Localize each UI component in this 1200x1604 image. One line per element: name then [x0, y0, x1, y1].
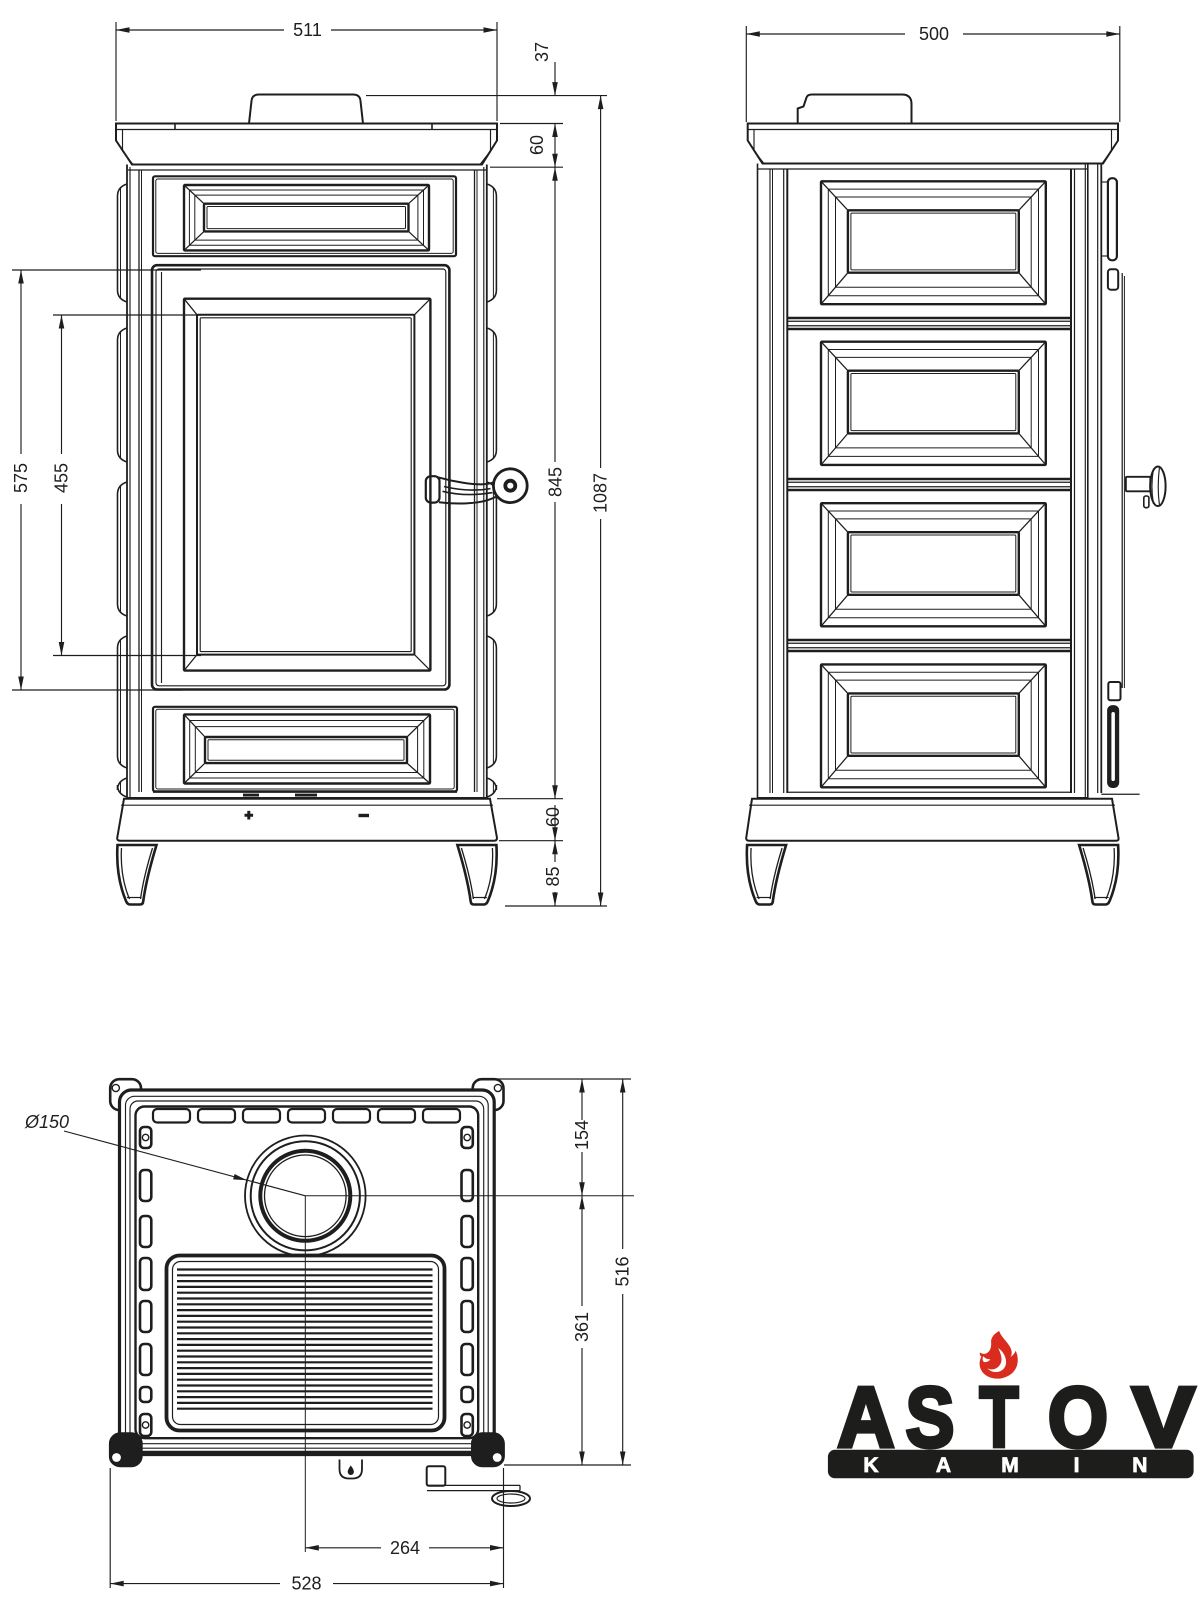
- svg-text:A: A: [936, 1454, 951, 1477]
- svg-text:60: 60: [527, 135, 547, 155]
- svg-text:I: I: [1074, 1454, 1080, 1477]
- svg-text:455: 455: [52, 463, 72, 493]
- svg-text:60: 60: [543, 807, 563, 827]
- svg-text:Ø150: Ø150: [24, 1112, 69, 1132]
- svg-text:361: 361: [572, 1312, 592, 1342]
- svg-text:516: 516: [613, 1256, 633, 1286]
- svg-text:528: 528: [291, 1574, 321, 1594]
- svg-text:845: 845: [546, 467, 566, 497]
- svg-text:154: 154: [572, 1120, 592, 1150]
- svg-text:1087: 1087: [591, 473, 611, 513]
- svg-text:85: 85: [543, 866, 563, 886]
- svg-text:37: 37: [532, 42, 552, 62]
- svg-text:K: K: [863, 1454, 878, 1477]
- svg-text:500: 500: [919, 24, 949, 44]
- svg-text:264: 264: [390, 1538, 420, 1558]
- svg-text:M: M: [1001, 1454, 1019, 1477]
- svg-text:N: N: [1132, 1454, 1147, 1477]
- svg-text:511: 511: [293, 20, 322, 40]
- svg-text:575: 575: [11, 463, 31, 493]
